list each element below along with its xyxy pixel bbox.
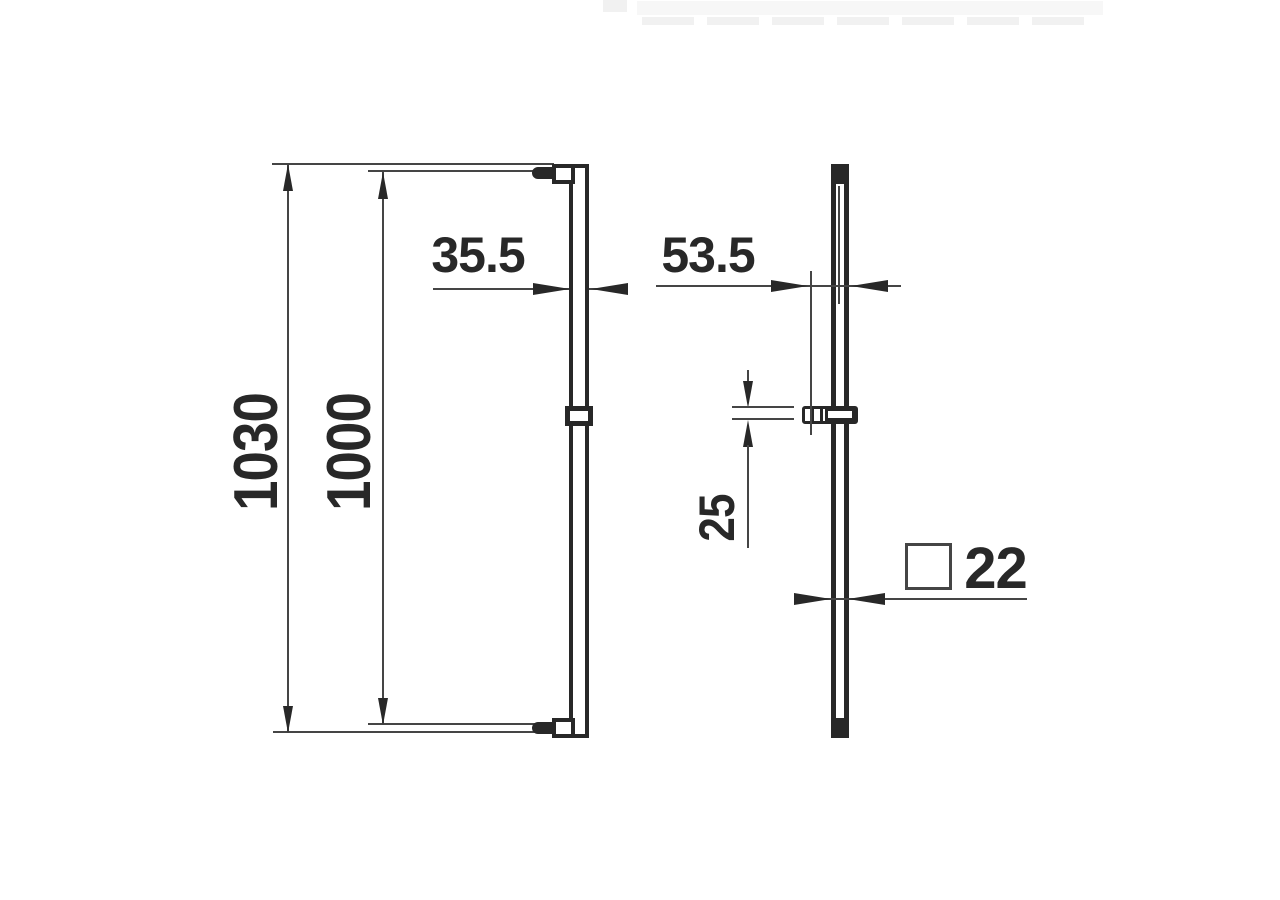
rail-end-cap-top — [831, 164, 849, 184]
arrowhead-icon — [771, 280, 808, 292]
dim-label-25: 25 — [687, 465, 747, 571]
extension-line-53-5 — [810, 271, 812, 435]
holder-inner-box — [825, 408, 855, 421]
rail-side-body — [831, 164, 849, 738]
extension-line-25-bottom — [732, 418, 794, 420]
dimension-stem-25-bottom — [747, 445, 749, 548]
dim-label-53-5: 53.5 — [628, 229, 788, 281]
holder-divider — [820, 407, 823, 423]
arrowhead-icon — [743, 420, 753, 447]
dimension-line-22 — [798, 598, 1027, 600]
arrowhead-icon — [851, 280, 888, 292]
rail-end-cap-bottom — [831, 718, 849, 738]
dim-label-22: 22 — [938, 541, 1053, 597]
extension-line-25-top — [732, 406, 794, 408]
holder-divider — [812, 407, 814, 423]
side-view: 53.5 25 22 — [0, 0, 1280, 900]
arrowhead-icon — [848, 593, 885, 605]
technical-drawing: 1030 1000 35.5 53.5 — [0, 0, 1280, 900]
arrowhead-icon — [743, 381, 753, 408]
arrowhead-icon — [794, 593, 831, 605]
